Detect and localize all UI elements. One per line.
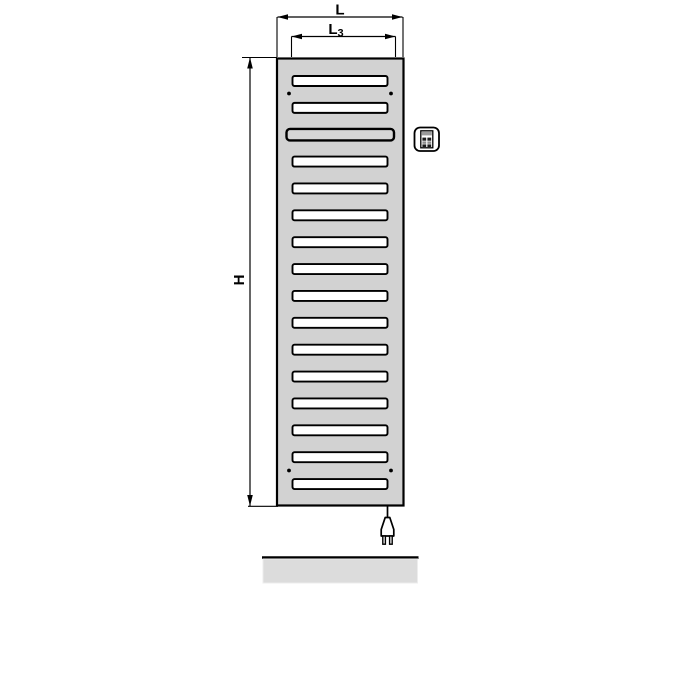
radiator-slot: [293, 398, 388, 408]
arrowhead-top: [247, 58, 253, 69]
radiator-slot: [293, 479, 388, 489]
dimension-h-label: H: [231, 275, 248, 286]
radiator-slot: [293, 237, 388, 247]
dimension-inner-width: L3: [292, 21, 396, 57]
control-unit-button: [422, 144, 426, 147]
control-unit-button: [427, 144, 431, 147]
radiator-slot: [293, 372, 388, 382]
dimension-l3-main: L: [328, 21, 337, 38]
floor-surface: [263, 559, 418, 583]
arrowhead-right: [392, 14, 403, 20]
radiator-body: [277, 59, 404, 506]
control-unit-button: [422, 138, 426, 141]
radiator-slot: [293, 183, 388, 193]
mounting-hole-dot: [287, 92, 291, 96]
mounting-hole-dot: [287, 469, 291, 473]
radiator-diagram-canvas: L L3 H: [0, 0, 700, 700]
radiator-slot: [293, 291, 388, 301]
control-unit-icon: [415, 128, 440, 152]
mounting-hole-dot: [389, 469, 393, 473]
control-unit-button: [422, 141, 426, 143]
radiator-slot: [293, 425, 388, 435]
control-unit-button: [427, 138, 431, 141]
arrowhead-left: [278, 14, 289, 20]
technical-diagram: L L3 H: [0, 0, 700, 700]
plug-pin-left: [383, 536, 386, 544]
dimension-height: H: [231, 58, 278, 507]
dimension-l3-subscript: 3: [338, 28, 344, 40]
plug-pin-right: [390, 536, 393, 544]
radiator-slot: [293, 103, 388, 113]
arrowhead-bottom: [247, 495, 253, 506]
radiator-slot: [293, 210, 388, 220]
radiator-slot: [293, 345, 388, 355]
radiator-slot: [293, 452, 388, 462]
power-plug-icon: [381, 506, 394, 544]
plug-body: [381, 518, 394, 537]
arrowhead-left: [292, 34, 303, 40]
control-unit-display: [422, 132, 432, 136]
radiator-slot: [293, 264, 388, 274]
arrowhead-right: [385, 34, 396, 40]
dimension-l3-label: L3: [328, 21, 343, 40]
mounting-hole-dot: [389, 92, 393, 96]
floor-strip: [262, 558, 419, 583]
radiator-wide-slot: [287, 129, 395, 141]
radiator-slot: [293, 76, 388, 86]
radiator-slot: [293, 157, 388, 167]
control-unit-button: [427, 141, 431, 143]
radiator-slot: [293, 318, 388, 328]
dimension-l-label: L: [335, 2, 344, 19]
